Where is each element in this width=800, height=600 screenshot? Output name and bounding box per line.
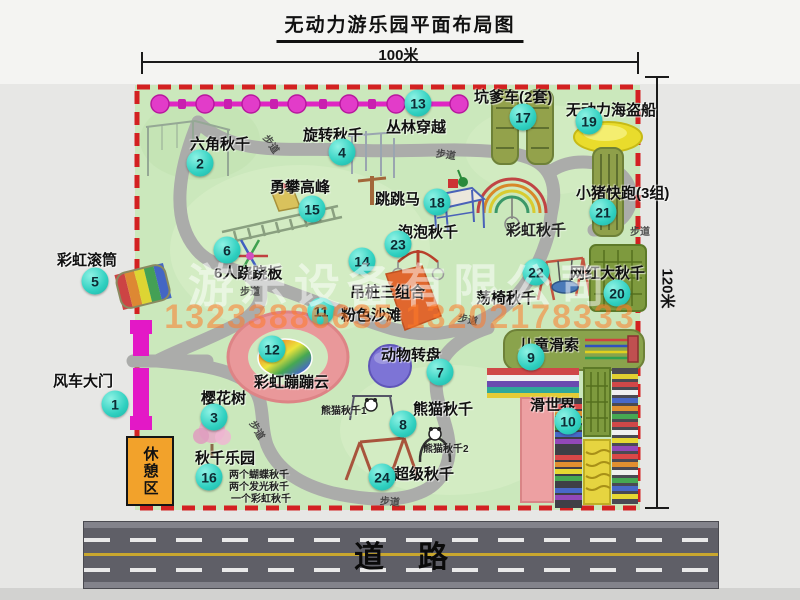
big-swing-box-icon [590,245,646,311]
animal-turntable-icon [369,345,411,387]
road-label: 道路 [320,532,482,576]
page-title: 无动力游乐园平面布局图 [276,10,523,43]
windmill-gate [130,320,152,430]
rest-area-box: 休憩区 [126,436,174,506]
dimension-height-label: 120米 [658,268,679,308]
dimension-width-label: 100米 [378,44,418,65]
park-map-graphic [0,0,800,600]
park-map-page: 无动力游乐园平面布局图 100米 120米 休憩区 风车大门1六角秋千2樱花树3… [0,0,800,600]
pink-beach-icon [228,312,348,402]
zipline-icon [504,330,644,370]
road: 道路 [84,522,718,588]
piggy-run-icon [593,148,623,236]
